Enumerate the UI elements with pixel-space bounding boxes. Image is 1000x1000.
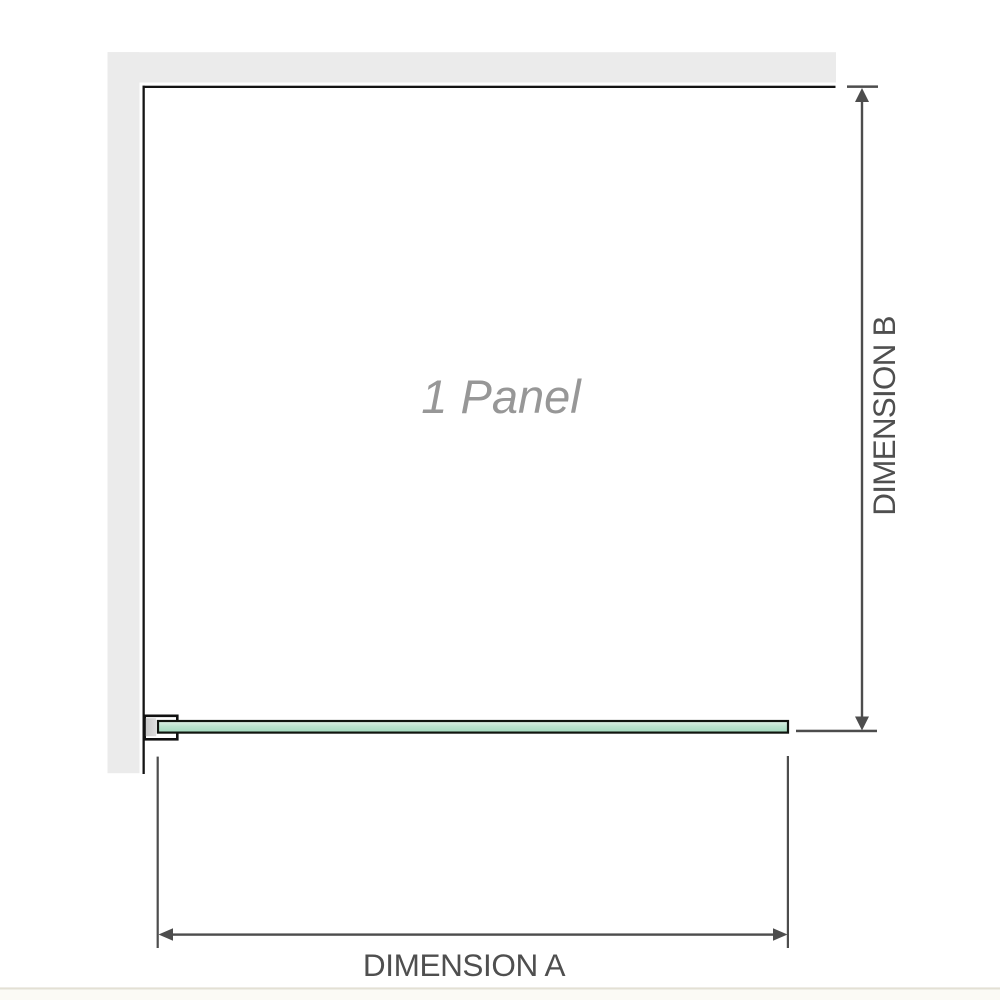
svg-text:DIMENSION A: DIMENSION A [363, 947, 566, 983]
svg-text:DIMENSION B: DIMENSION B [866, 316, 902, 515]
svg-text:1 Panel: 1 Panel [421, 370, 582, 423]
